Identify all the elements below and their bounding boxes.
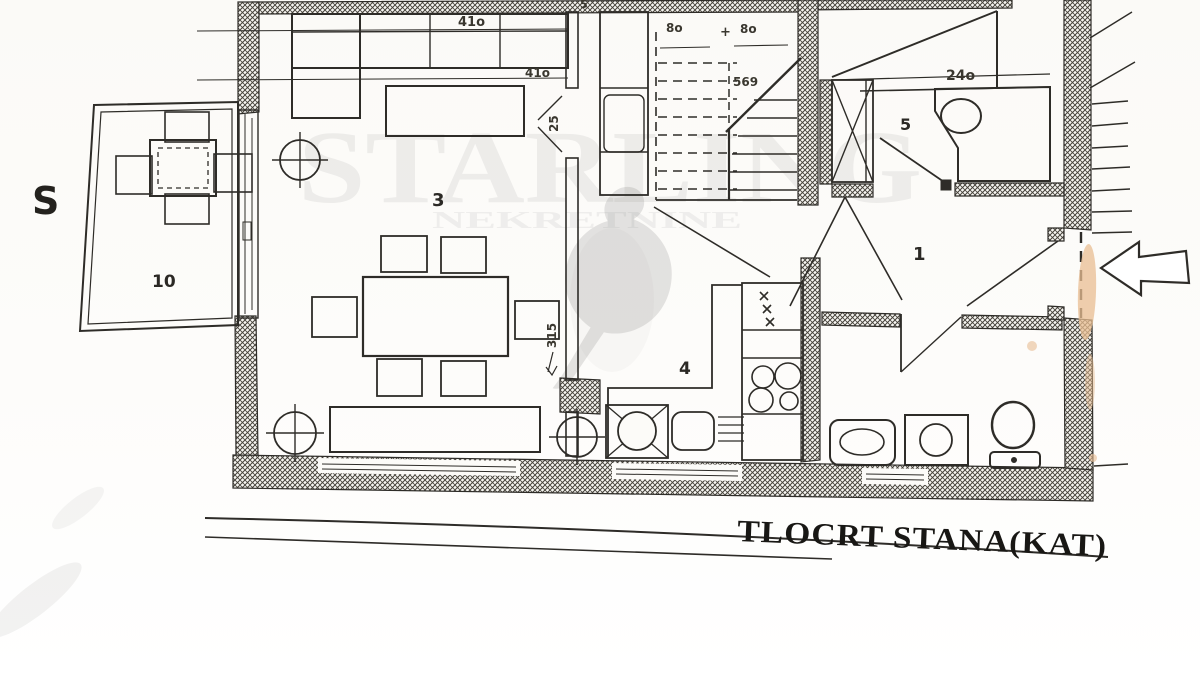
washbasin xyxy=(941,99,981,133)
room-label-hall: 1 xyxy=(913,244,926,265)
corner-sofa-left xyxy=(292,14,360,118)
wall-left-lower xyxy=(235,316,258,457)
chair xyxy=(441,237,486,273)
balcony-chair xyxy=(165,194,209,224)
dim-living-door: 25 xyxy=(547,115,561,132)
stove-burner xyxy=(752,366,774,388)
wall-bath-top-a xyxy=(822,312,900,327)
wall-room5-bottom-a xyxy=(832,184,873,197)
watermark-subtitle: NEKRETNINE xyxy=(432,208,742,234)
chair xyxy=(312,297,357,337)
entry-door-swing xyxy=(967,241,1058,306)
bath-door-swing xyxy=(901,317,961,372)
balcony-outline xyxy=(80,102,238,331)
stove-burner xyxy=(780,392,798,410)
toilet xyxy=(992,402,1034,448)
dim-room5-width: 24o xyxy=(946,68,975,84)
dim-stairs-left: 8o xyxy=(666,21,683,35)
sideboard xyxy=(330,407,540,452)
room-label-living: 3 xyxy=(432,190,445,211)
stove-burner xyxy=(775,363,801,389)
wall-stairs-right xyxy=(798,0,818,205)
bathroom-fixtures xyxy=(830,402,1040,468)
plan-title: TLOCRT STANA(KAT) xyxy=(737,513,1108,563)
balcony-chair xyxy=(116,156,152,194)
wall-top xyxy=(252,0,800,14)
balcony-door-window xyxy=(239,110,258,318)
ceiling-lamp xyxy=(266,404,324,462)
room-label-bath-upper: 5 xyxy=(900,115,911,134)
hall-entry xyxy=(901,232,1081,372)
room-label-kitchen: 4 xyxy=(679,359,691,379)
dim-sofa-top: 41o xyxy=(458,15,485,30)
dim-stairs-run: 569 xyxy=(733,75,758,89)
wall-entry-stub-bottom xyxy=(1048,306,1064,320)
dim-stairs-right: 8o xyxy=(740,22,757,36)
wall-entry-stub-top xyxy=(1048,228,1064,241)
dim-sofa-inner: 41o xyxy=(525,66,550,80)
wall-left-upper xyxy=(238,2,259,114)
dim-stairs-plus: + xyxy=(720,25,731,40)
balcony-chair xyxy=(214,154,252,192)
wall-living-pier xyxy=(560,378,600,414)
scan-artifacts xyxy=(0,228,654,648)
kitchen-basin2 xyxy=(672,412,714,450)
wall-room5-bottom-b xyxy=(955,183,1064,196)
chair xyxy=(441,361,486,396)
stove-burner xyxy=(749,388,773,412)
entry-arrow-icon xyxy=(1101,242,1189,295)
dim-living-depth: 315 xyxy=(545,323,559,348)
right-edge-ticks xyxy=(1090,12,1135,466)
wall-right-upper xyxy=(1064,0,1091,230)
floor-plan-canvas: STARLING NEKRETNINE xyxy=(0,0,1200,675)
compass-label: S xyxy=(32,179,59,223)
floor-plan-scan: STARLING NEKRETNINE xyxy=(0,0,1200,675)
balcony-chair xyxy=(165,112,209,142)
balcony xyxy=(80,102,252,331)
dining-table xyxy=(363,277,508,356)
room-label-balcony: 10 xyxy=(152,272,176,292)
washing-machine xyxy=(905,415,968,465)
wall-bath-top-b xyxy=(962,315,1062,330)
ceiling-lamp xyxy=(549,409,605,465)
chair xyxy=(381,236,427,272)
chair xyxy=(377,359,422,396)
wall-top-right xyxy=(800,0,1012,10)
wall-room5-left xyxy=(820,80,832,184)
dim-top-partial: 5 xyxy=(580,0,588,11)
title-block: TLOCRT STANA(KAT) xyxy=(205,513,1108,563)
